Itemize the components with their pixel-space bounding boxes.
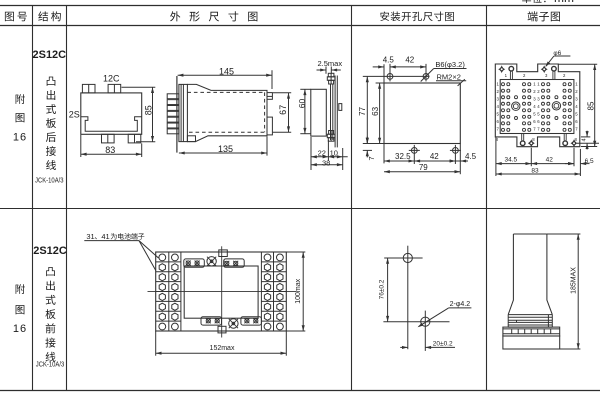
svg-text:10: 10	[330, 148, 338, 157]
svg-text:185MAX: 185MAX	[571, 267, 578, 294]
svg-text:JCK-10A/3: JCK-10A/3	[36, 361, 65, 368]
svg-text:31: 31	[86, 232, 94, 241]
svg-text:76±0.2: 76±0.2	[378, 279, 385, 299]
svg-text:7: 7	[367, 156, 376, 160]
svg-text:100max: 100max	[295, 278, 302, 303]
svg-text:4: 4	[582, 138, 588, 141]
svg-text:2S: 2S	[69, 110, 80, 120]
svg-text:83: 83	[531, 168, 539, 175]
svg-text:60: 60	[297, 99, 307, 109]
svg-text:4.5: 4.5	[465, 152, 477, 161]
svg-text:2-φ4.2: 2-φ4.2	[450, 301, 471, 308]
svg-text:34.5: 34.5	[504, 157, 517, 164]
svg-text:41: 41	[101, 232, 109, 241]
svg-text:79: 79	[419, 163, 428, 172]
svg-text:mm: mm	[554, 0, 574, 5]
svg-text:16: 16	[13, 132, 27, 144]
svg-text:145: 145	[219, 67, 234, 77]
svg-text:32.5: 32.5	[395, 152, 411, 161]
svg-text:2S12C: 2S12C	[33, 49, 67, 61]
svg-text:83: 83	[105, 145, 115, 155]
svg-text:20±0.2: 20±0.2	[433, 341, 453, 348]
svg-text:6.5: 6.5	[585, 158, 594, 165]
svg-text:42: 42	[430, 152, 439, 161]
svg-text:B6(φ3.2): B6(φ3.2)	[435, 60, 465, 69]
svg-text:22: 22	[318, 148, 326, 157]
svg-text:16: 16	[13, 323, 27, 335]
svg-text:135: 135	[218, 144, 233, 154]
svg-text:67: 67	[278, 105, 288, 115]
svg-text:38: 38	[322, 158, 330, 167]
svg-text:2S12C: 2S12C	[33, 245, 67, 257]
svg-text:RM2×2: RM2×2	[437, 72, 461, 81]
svg-text:42: 42	[405, 56, 414, 65]
svg-text:85: 85	[587, 101, 596, 110]
svg-text:4.5: 4.5	[383, 56, 395, 65]
svg-text:85: 85	[144, 105, 154, 115]
svg-text:2.5max: 2.5max	[317, 59, 342, 68]
svg-text:63: 63	[371, 106, 380, 115]
svg-text:152max: 152max	[210, 345, 235, 352]
svg-text:JCK-10A/3: JCK-10A/3	[35, 178, 64, 185]
svg-text:42: 42	[546, 157, 554, 164]
svg-text:77: 77	[358, 106, 367, 115]
svg-text:12C: 12C	[103, 74, 120, 84]
